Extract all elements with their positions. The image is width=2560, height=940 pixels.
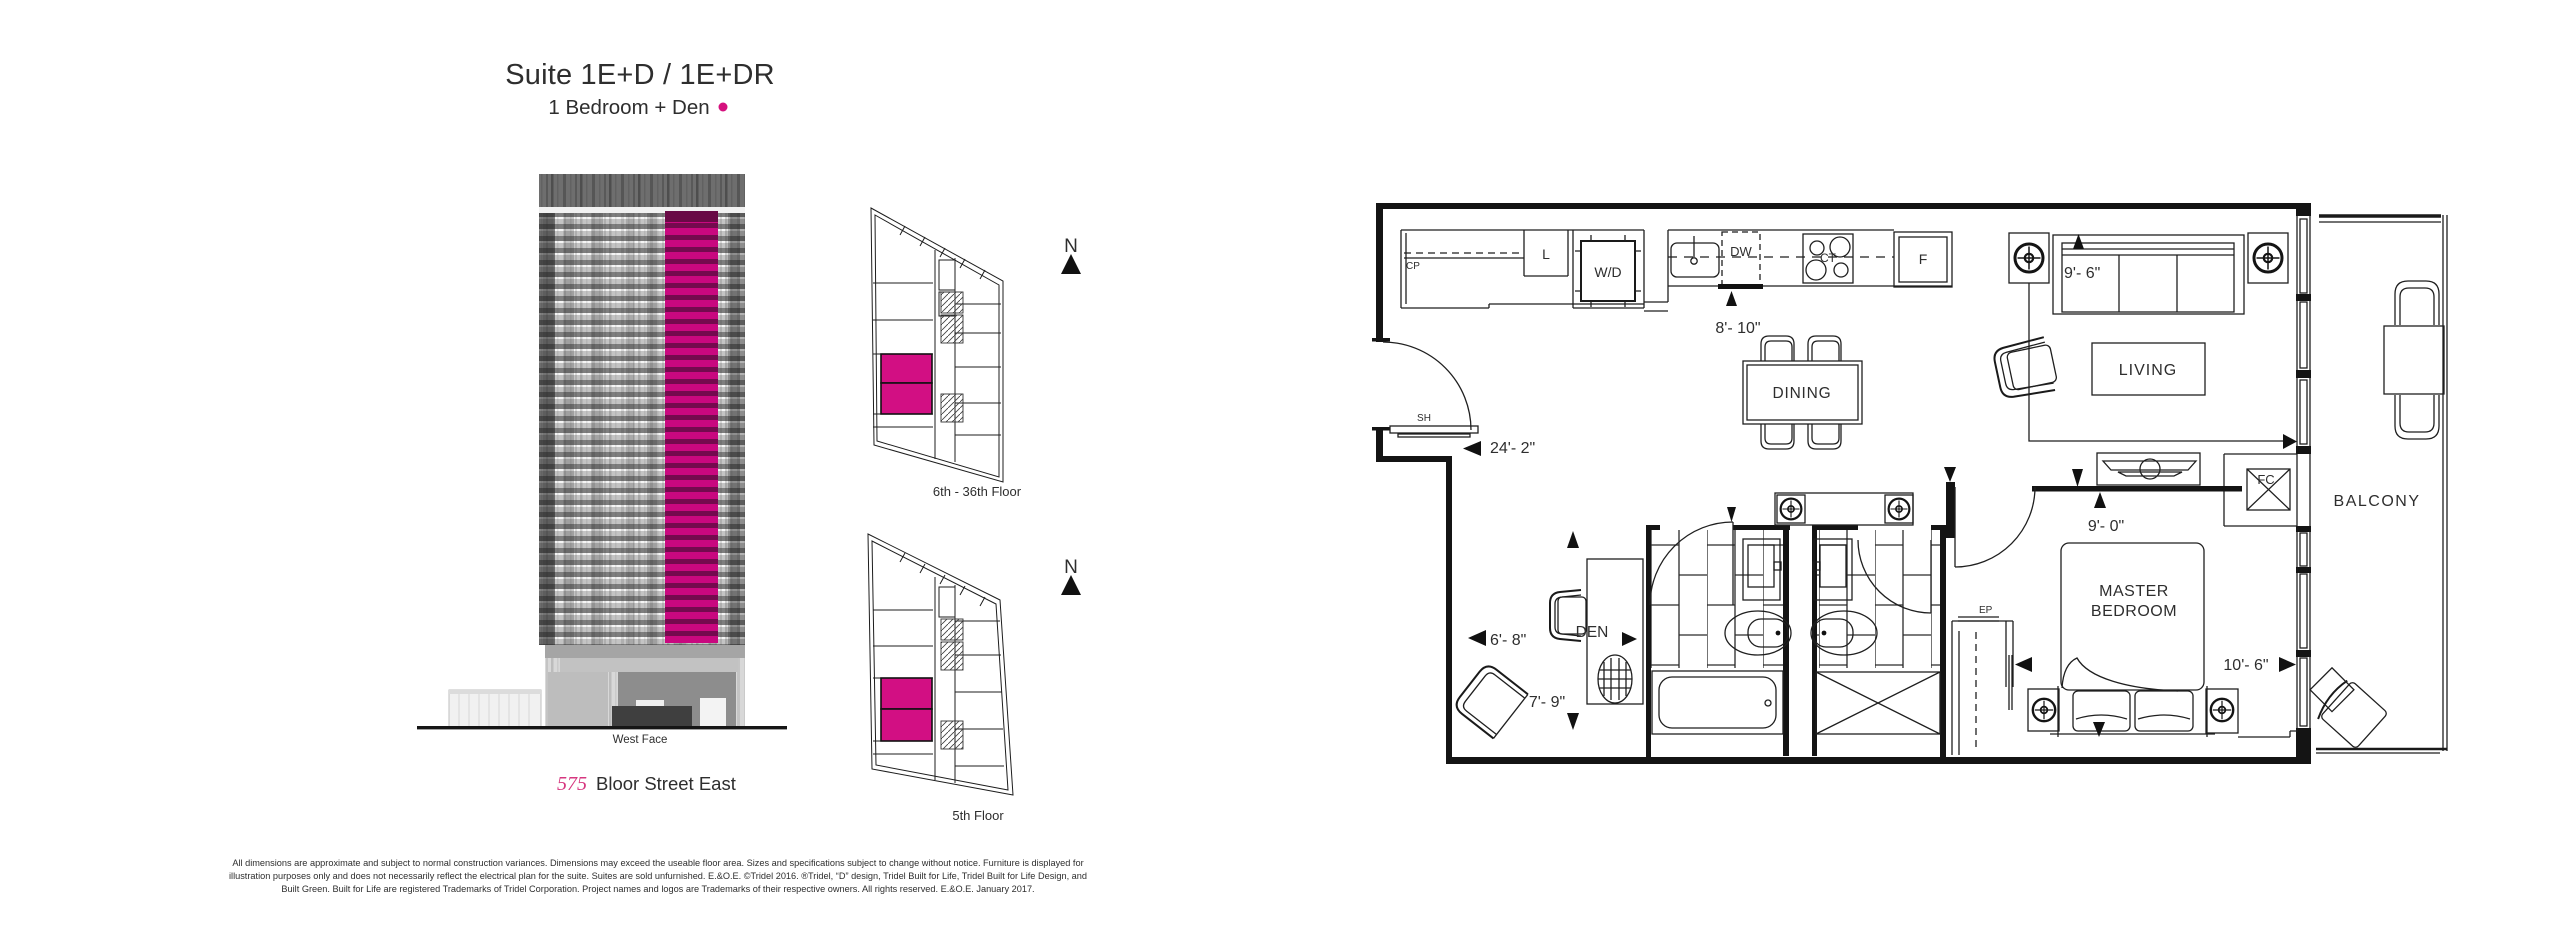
svg-text:BALCONY: BALCONY	[2334, 493, 2421, 510]
svg-text:10'- 6": 10'- 6"	[2223, 657, 2268, 674]
svg-text:8'- 10": 8'- 10"	[1715, 320, 1760, 337]
svg-text:DW: DW	[1730, 244, 1752, 259]
svg-text:Built Green. Built for Life ar: Built Green. Built for Life are register…	[281, 884, 1034, 894]
svg-text:5th Floor: 5th Floor	[952, 808, 1004, 823]
svg-text:6'- 8": 6'- 8"	[1490, 632, 1526, 649]
svg-text:N: N	[1064, 236, 1078, 257]
svg-text:CT: CT	[1820, 251, 1837, 265]
svg-text:N: N	[1064, 557, 1078, 578]
svg-text:24'- 2": 24'- 2"	[1490, 440, 1535, 457]
svg-text:All dimensions are approximate: All dimensions are approximate and subje…	[232, 858, 1083, 868]
svg-text:illustration purposes only and: illustration purposes only and does not …	[229, 871, 1087, 881]
svg-text:575: 575	[557, 773, 587, 795]
svg-text:L: L	[1542, 246, 1550, 262]
svg-text:6th - 36th Floor: 6th - 36th Floor	[933, 484, 1022, 499]
svg-text:9'- 6": 9'- 6"	[2064, 265, 2100, 282]
svg-text:1 Bedroom + Den: 1 Bedroom + Den	[548, 96, 709, 119]
svg-text:7'- 9": 7'- 9"	[1529, 694, 1565, 711]
svg-text:9'- 0": 9'- 0"	[2088, 518, 2124, 535]
svg-text:CP: CP	[1406, 261, 1420, 272]
svg-text:Suite 1E+D / 1E+DR: Suite 1E+D / 1E+DR	[505, 59, 775, 91]
svg-text:West Face: West Face	[613, 734, 668, 746]
svg-text:W/D: W/D	[1594, 264, 1621, 280]
svg-text:DEN: DEN	[1576, 624, 1609, 641]
svg-text:MASTER: MASTER	[2099, 583, 2169, 600]
svg-text:F: F	[1919, 251, 1928, 267]
svg-text:BEDROOM: BEDROOM	[2091, 603, 2177, 620]
svg-text:DINING: DINING	[1772, 385, 1831, 402]
svg-text:FC: FC	[2257, 472, 2274, 487]
svg-text:SH: SH	[1417, 413, 1431, 424]
svg-text:LIVING: LIVING	[2119, 362, 2177, 379]
svg-text:Bloor Street East: Bloor Street East	[596, 773, 736, 794]
svg-text:EP: EP	[1979, 605, 1993, 616]
